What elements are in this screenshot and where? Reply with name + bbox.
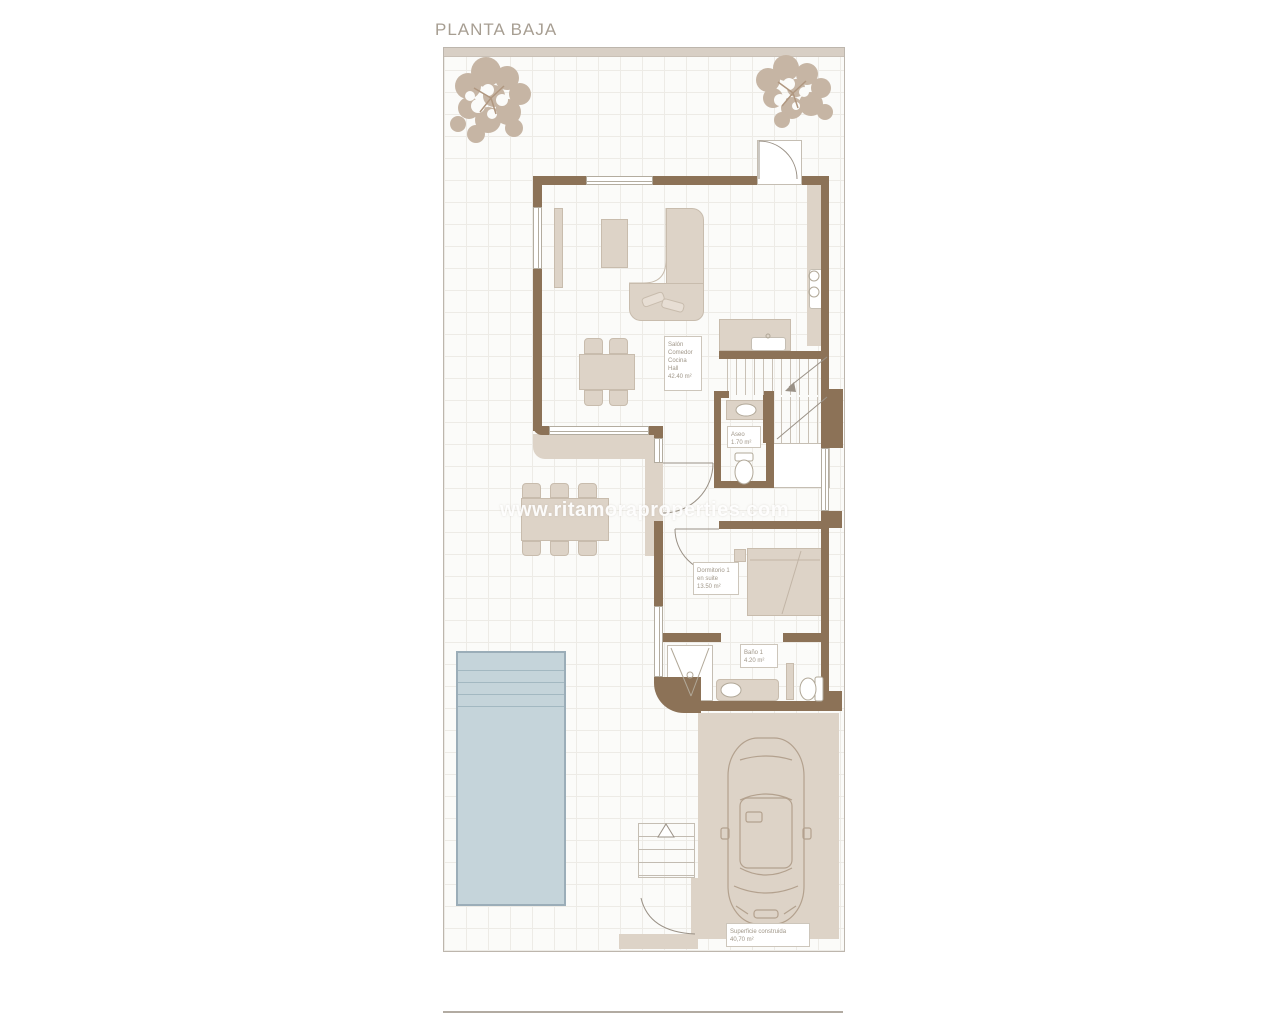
chair	[522, 541, 541, 556]
bathroom-vanity	[716, 679, 779, 701]
entrance-door-area	[757, 140, 802, 185]
chair	[584, 338, 603, 354]
aseo-label: Aseo 1.70 m²	[727, 426, 761, 448]
driveway-floor	[619, 934, 698, 949]
wall-segment	[829, 511, 842, 528]
kitchen-sink	[751, 337, 786, 351]
driveway-edge	[691, 878, 701, 939]
wall-segment	[829, 389, 843, 448]
watermark: www.ritamoraproperties.com	[500, 499, 792, 522]
chair	[609, 338, 628, 354]
tv-unit	[554, 208, 563, 288]
built-area-label: Superficie construida 40,70 m²	[726, 923, 810, 947]
bathroom-label: Baño 1 4.20 m²	[740, 644, 778, 668]
stairs-treads	[719, 359, 829, 395]
site-plan: Salón Comedor Cocina Hall 42.40 m² Aseo …	[443, 47, 845, 952]
coffee-table	[601, 219, 628, 268]
wall-segment	[829, 691, 842, 711]
wall-segment	[714, 391, 729, 398]
window	[654, 438, 663, 463]
wall-segment	[719, 351, 829, 359]
window	[821, 448, 829, 511]
footer-divider	[443, 1011, 843, 1013]
window	[533, 207, 542, 269]
window	[586, 176, 653, 185]
chair	[578, 483, 597, 498]
sofa	[629, 283, 704, 321]
pool	[456, 651, 566, 906]
wall-segment	[654, 426, 663, 438]
path-curve	[641, 898, 695, 934]
chair	[550, 483, 569, 498]
chair	[578, 541, 597, 556]
bedroom-label: Dormitorio 1 en suite 13.50 m²	[693, 562, 739, 595]
plot-boundary-strip	[444, 48, 844, 57]
aseo-sink-unit	[726, 400, 766, 420]
chair	[522, 483, 541, 498]
toilet-icon	[800, 677, 823, 701]
pool-steps	[458, 659, 564, 707]
wall-segment	[533, 269, 542, 431]
chair	[550, 541, 569, 556]
bed	[747, 548, 823, 616]
bathroom-cabinet	[786, 663, 794, 700]
window	[654, 606, 663, 677]
wall-segment	[714, 398, 721, 488]
porch-floor	[533, 434, 663, 459]
page-title: PLANTA BAJA	[435, 20, 557, 40]
wall-segment	[719, 521, 829, 529]
wall-segment	[653, 176, 758, 185]
chair	[609, 390, 628, 406]
wall-segment	[821, 511, 829, 711]
window	[549, 426, 649, 435]
driveway-floor	[698, 713, 839, 939]
garage-steps	[638, 823, 695, 878]
chair	[584, 390, 603, 406]
wall-segment	[714, 481, 774, 488]
wall-segment	[783, 633, 829, 642]
dining-table	[579, 354, 635, 390]
wall-segment	[821, 176, 829, 448]
nightstand	[734, 549, 746, 562]
tree-icon	[756, 55, 833, 128]
kitchen-counter	[807, 185, 821, 346]
wall-segment	[663, 633, 721, 642]
wall-segment	[694, 701, 830, 711]
wall-segment	[766, 398, 774, 488]
tree-icon	[450, 57, 531, 143]
wall-segment	[764, 391, 774, 398]
living-room-label: Salón Comedor Cocina Hall 42.40 m²	[664, 336, 702, 391]
wall-segment	[654, 521, 663, 606]
wall-segment	[533, 176, 542, 207]
